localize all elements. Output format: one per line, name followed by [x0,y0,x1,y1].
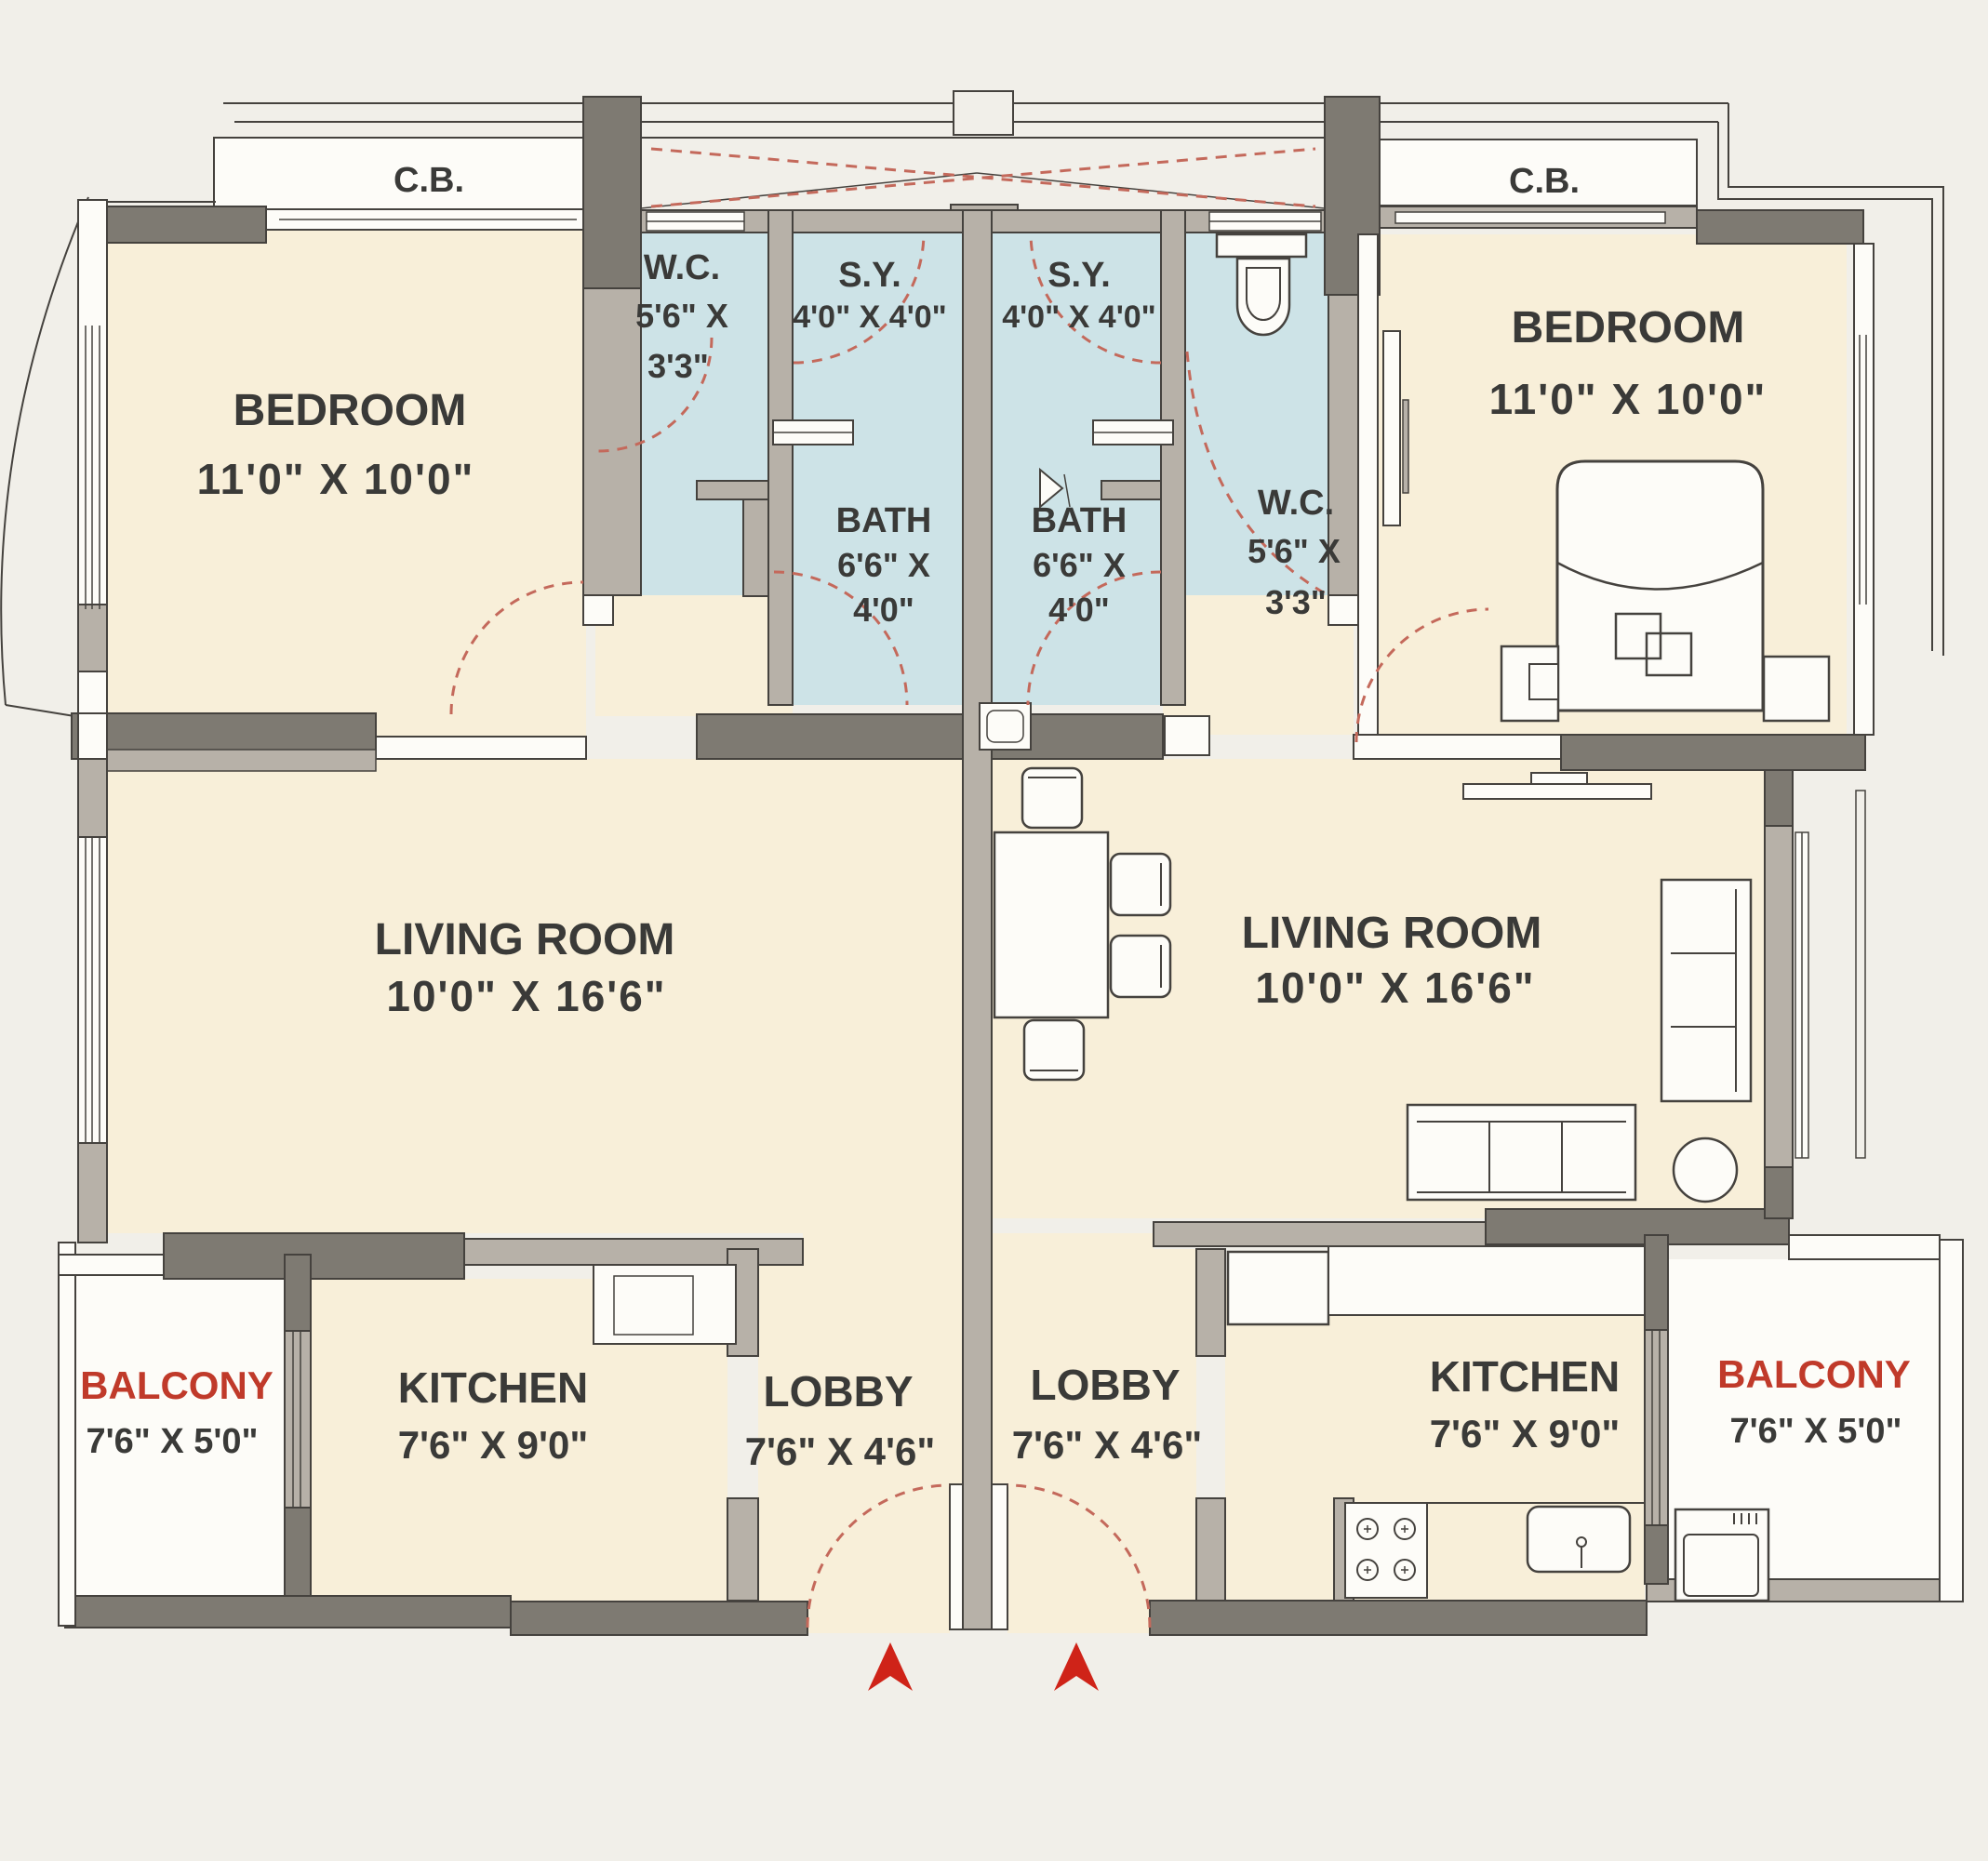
svg-text:7'6" X 4'6": 7'6" X 4'6" [1012,1423,1203,1467]
svg-text:LIVING ROOM: LIVING ROOM [375,915,675,964]
svg-text:7'6" X 4'6": 7'6" X 4'6" [745,1429,936,1473]
svg-text:BEDROOM: BEDROOM [233,386,467,435]
svg-text:C.B.: C.B. [1509,162,1580,201]
svg-text:5'6" X: 5'6" X [635,297,728,335]
svg-text:S.Y.: S.Y. [1047,256,1111,295]
svg-text:7'6" X 9'0": 7'6" X 9'0" [398,1423,589,1467]
svg-text:7'6" X 5'0": 7'6" X 5'0" [86,1422,258,1461]
svg-text:5'6" X: 5'6" X [1248,532,1341,570]
svg-text:7'6" X 5'0": 7'6" X 5'0" [1729,1412,1901,1451]
svg-text:4'0" X 4'0": 4'0" X 4'0" [793,299,947,335]
svg-text:BATH: BATH [1032,501,1127,540]
svg-text:C.B.: C.B. [394,161,464,200]
svg-text:W.C.: W.C. [1258,484,1334,523]
svg-text:4'0" X 4'0": 4'0" X 4'0" [1002,299,1156,335]
svg-text:11'0" X 10'0": 11'0" X 10'0" [197,455,475,503]
svg-text:BALCONY: BALCONY [80,1363,274,1407]
svg-text:7'6" X 9'0": 7'6" X 9'0" [1430,1412,1621,1456]
svg-text:6'6" X: 6'6" X [837,546,930,584]
svg-text:11'0" X 10'0": 11'0" X 10'0" [1489,375,1768,423]
svg-text:KITCHEN: KITCHEN [1430,1352,1620,1401]
svg-text:BEDROOM: BEDROOM [1512,303,1745,352]
svg-text:BALCONY: BALCONY [1717,1352,1911,1396]
svg-text:4'0": 4'0" [853,591,914,629]
svg-text:W.C.: W.C. [644,248,720,287]
svg-text:BATH: BATH [836,501,932,540]
svg-text:3'3": 3'3" [1265,583,1327,621]
svg-text:KITCHEN: KITCHEN [398,1363,588,1412]
svg-text:LOBBY: LOBBY [1031,1361,1181,1409]
svg-text:10'0" X 16'6": 10'0" X 16'6" [1255,964,1535,1012]
svg-text:LIVING ROOM: LIVING ROOM [1242,909,1542,958]
svg-text:S.Y.: S.Y. [838,256,901,295]
svg-text:LOBBY: LOBBY [764,1367,914,1416]
svg-text:10'0" X 16'6": 10'0" X 16'6" [386,972,666,1020]
svg-text:3'3": 3'3" [647,347,709,385]
svg-text:6'6" X: 6'6" X [1033,546,1126,584]
svg-text:4'0": 4'0" [1048,591,1110,629]
